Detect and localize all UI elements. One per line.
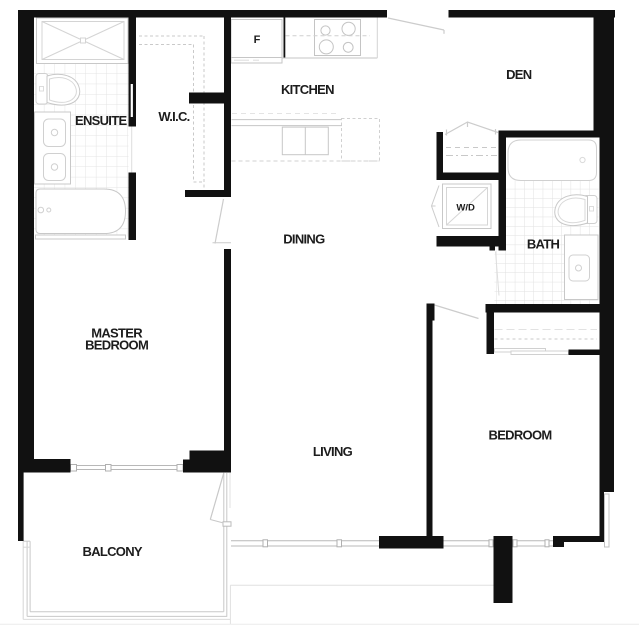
svg-text:BATH: BATH — [527, 237, 560, 252]
svg-text:W.I.C.: W.I.C. — [158, 109, 189, 124]
svg-text:DINING: DINING — [283, 232, 325, 247]
svg-text:F: F — [254, 34, 261, 46]
svg-text:BALCONY: BALCONY — [83, 544, 143, 559]
svg-text:BEDROOM: BEDROOM — [85, 338, 148, 353]
svg-text:LIVING: LIVING — [313, 444, 353, 459]
svg-text:BEDROOM: BEDROOM — [489, 428, 552, 443]
svg-text:ENSUITE: ENSUITE — [75, 113, 127, 128]
svg-text:KITCHEN: KITCHEN — [281, 82, 334, 97]
svg-text:W/D: W/D — [456, 203, 475, 214]
svg-text:DEN: DEN — [506, 67, 532, 82]
